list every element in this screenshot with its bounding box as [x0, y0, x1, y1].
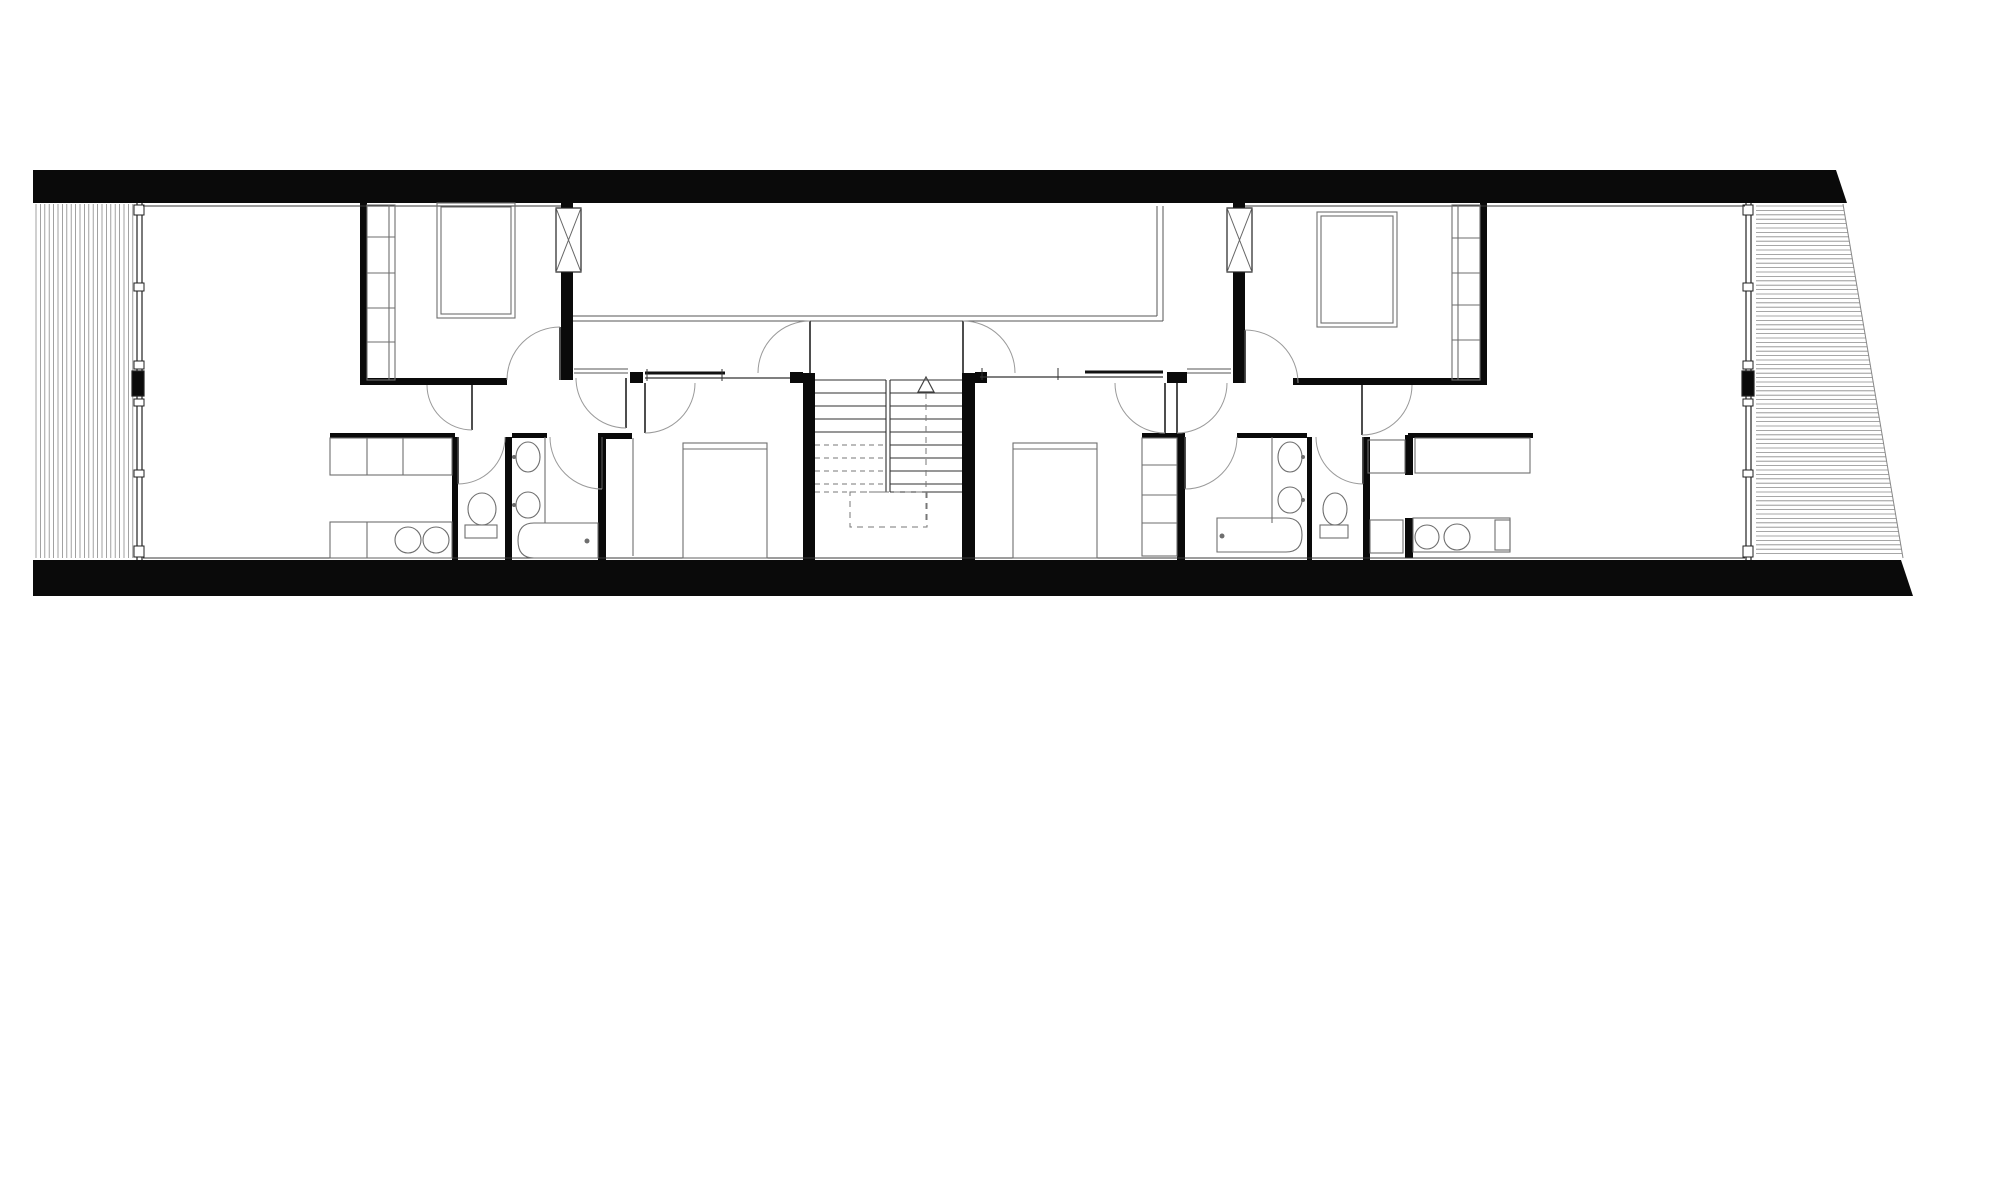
washer-right-1 [1415, 525, 1439, 549]
right-mullion-2 [1743, 283, 1753, 291]
bath-left-top-wall [512, 433, 547, 438]
window-left-lower-wall [561, 272, 573, 380]
bath-right-tub [1217, 518, 1302, 552]
right-center-mullion [1742, 371, 1754, 396]
bath-right-sink-1-faucet [1301, 455, 1305, 459]
windows [556, 208, 1252, 272]
laundry-left-top-wall [330, 433, 455, 438]
laundry-left-upper-counter [330, 438, 452, 475]
bed2-left-door-arc [645, 383, 695, 433]
wc-right-toilet-bowl [1323, 493, 1347, 525]
bed2-right [1013, 443, 1097, 558]
bed1-left-west-wall [360, 203, 367, 385]
bed2-left [683, 443, 767, 558]
left-mullion-5 [134, 470, 144, 477]
bath-right-door-arc [1185, 437, 1237, 489]
washer-right-2 [1444, 524, 1470, 550]
wc-left-door-arc [458, 437, 505, 484]
top-wall [33, 170, 1847, 203]
wc-right-door-arc [1316, 437, 1363, 484]
wc-right-east-wall [1363, 437, 1370, 560]
bed1-left-south-wall [360, 378, 507, 385]
stair-left-door-arc [758, 321, 810, 373]
bath-left-sink-2-faucet [512, 503, 516, 507]
bed1-right-east-wall [1480, 203, 1487, 383]
floor-plan-page [0, 0, 2000, 1200]
laundry-right-top-wall [1408, 433, 1533, 438]
floor-plan-drawing [0, 0, 2000, 1200]
corridor-left-door-arc [427, 385, 472, 430]
bed1-right-inner [1321, 216, 1393, 323]
bath-right-sink-2-faucet [1301, 498, 1305, 502]
wc-left-toilet-tank [465, 525, 497, 538]
bath-right-sink-2 [1278, 487, 1302, 513]
laundry-right-lower-stub [1405, 518, 1413, 558]
doors [427, 321, 1412, 489]
stair-west-wall [803, 373, 815, 560]
track-left-west-stub [630, 372, 643, 383]
void_edge [573, 206, 1163, 321]
bath-right-sink-1 [1278, 442, 1302, 472]
bed1-left [437, 203, 515, 318]
right-mullion-4 [1743, 399, 1753, 406]
washer-left-2 [423, 527, 449, 553]
closet-left-cap-wall [605, 433, 632, 439]
fixtures [465, 437, 1348, 558]
hall-right-door-arc [1177, 383, 1227, 433]
washer-left-1 [395, 527, 421, 553]
bath-left-door-arc [550, 437, 602, 489]
wc-right-west-wall [1307, 437, 1312, 560]
bed2-right-door-arc [1115, 383, 1165, 433]
wardrobe-right [1452, 205, 1480, 380]
left-mullion-2 [134, 283, 144, 291]
stair [815, 377, 962, 527]
bed1-right-door-arc [1245, 330, 1298, 383]
wc-left-toilet-bowl [468, 493, 496, 525]
right-mullion-3 [1743, 361, 1753, 369]
stair-right-door-arc [963, 321, 1015, 373]
laundry-right-upper-counter [1415, 438, 1530, 473]
closet-right-cap-wall [1142, 433, 1177, 438]
track-left-east-stub [790, 372, 803, 383]
laundry-right-upper-square [1368, 440, 1405, 473]
left-mullion-3 [134, 361, 144, 369]
bed1-left-inner [441, 207, 511, 314]
bath-right-west-wall [1177, 433, 1185, 560]
right-deck-hatch [1756, 206, 1902, 554]
laundry-right-lower-end-box [1495, 520, 1510, 550]
bed1-left-door-arc [507, 327, 560, 380]
bath-left-tub-faucet [585, 539, 590, 544]
closet-right [1142, 438, 1177, 556]
corridor-right-door-arc [1362, 385, 1412, 435]
right-mullion-5 [1743, 470, 1753, 477]
bath-left-sink-1-faucet [512, 455, 516, 459]
sliding_tracks [574, 368, 1231, 381]
laundry-right-lower-square [1370, 520, 1403, 553]
bottom-wall [33, 560, 1913, 596]
left-deck-hatch [36, 204, 133, 558]
stair-landing-dashed-box [850, 492, 927, 527]
left-mullion-6 [134, 546, 144, 557]
wc-right-toilet-tank [1320, 525, 1348, 538]
bath-right-tub-faucet [1220, 534, 1225, 539]
laundry-right-upper-stub [1405, 435, 1413, 475]
stair-east-wall [962, 373, 975, 560]
bed1-right [1317, 212, 1397, 327]
window-right-lower-wall [1233, 272, 1245, 383]
right-mullion-6 [1743, 546, 1753, 557]
stair-up-arrow [918, 377, 934, 392]
left-center-mullion [132, 371, 144, 396]
bath-left-sink-2 [516, 492, 540, 518]
wc-left-east-wall [505, 437, 512, 560]
left-mullion-1 [134, 205, 144, 215]
walls [33, 170, 1913, 596]
hall-left-door-arc [576, 378, 626, 428]
bath-left-sink-1 [516, 442, 540, 472]
wardrobe-left [367, 205, 395, 380]
track-right-east-stub [1167, 372, 1187, 383]
left-mullion-4 [134, 399, 144, 406]
